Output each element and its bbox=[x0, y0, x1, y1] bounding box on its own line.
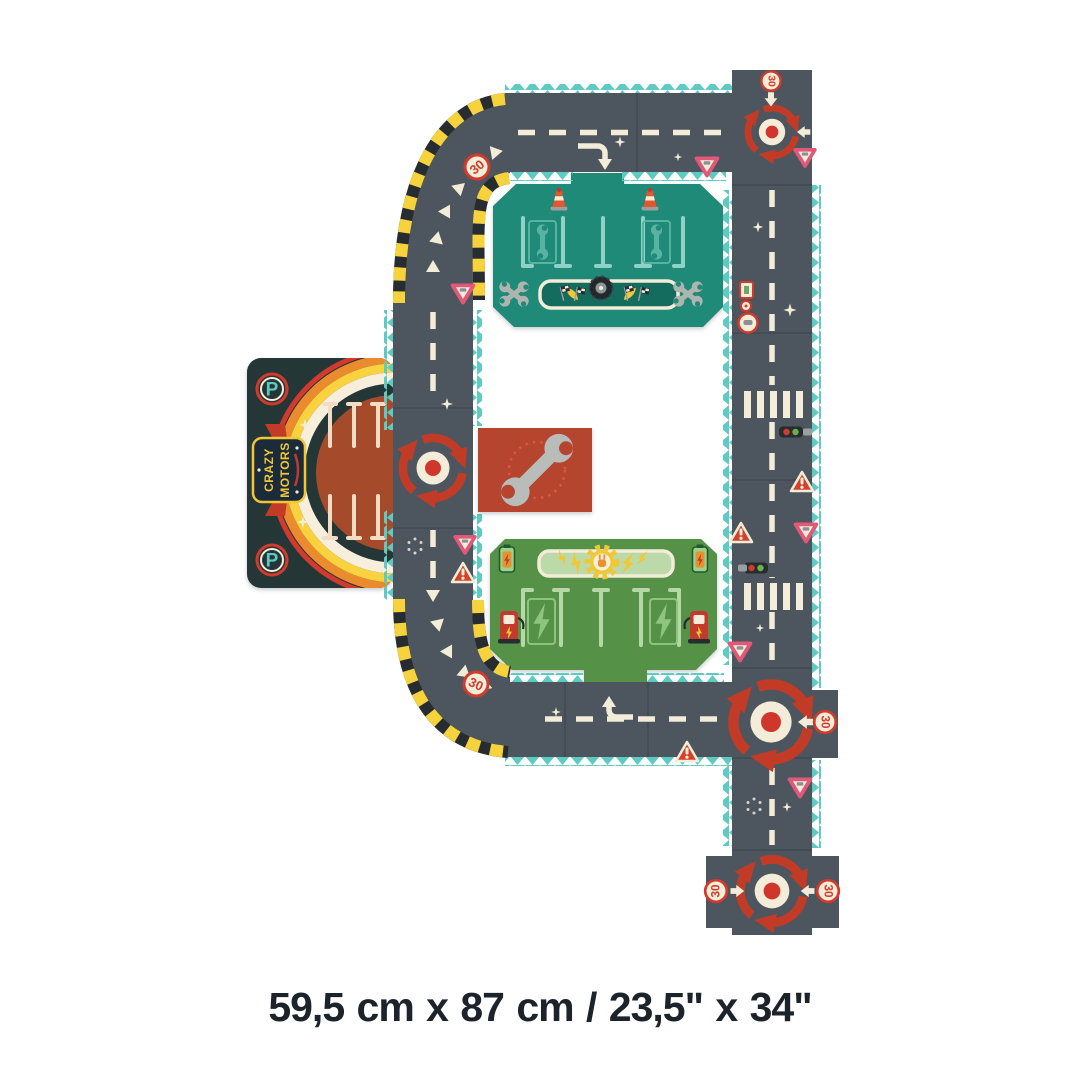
svg-text:30: 30 bbox=[822, 884, 835, 898]
product-image: P P CRAZY MOTORS bbox=[0, 0, 1080, 1080]
charging-station bbox=[490, 539, 717, 683]
svg-text:30: 30 bbox=[710, 884, 723, 898]
tire-icon bbox=[590, 277, 613, 300]
badge-line2: MOTORS bbox=[278, 442, 292, 497]
badge-line1: CRAZY bbox=[262, 448, 276, 492]
parking-sign-top: P bbox=[257, 374, 287, 404]
battery-icon bbox=[693, 545, 708, 573]
brand-badge: CRAZY MOTORS bbox=[253, 424, 305, 516]
battery-icon bbox=[500, 545, 515, 573]
garage-station bbox=[493, 173, 723, 327]
svg-text:P: P bbox=[266, 551, 279, 572]
parking-sign-bottom: P bbox=[257, 545, 287, 575]
dimensions-caption: 59,5 cm x 87 cm / 23,5" x 34" bbox=[0, 984, 1080, 1031]
svg-text:30: 30 bbox=[819, 715, 832, 729]
parking-letter: P bbox=[266, 380, 279, 401]
track-illustration: P P CRAZY MOTORS bbox=[0, 0, 1080, 1080]
service-tile bbox=[478, 428, 592, 512]
svg-text:30: 30 bbox=[766, 75, 777, 87]
